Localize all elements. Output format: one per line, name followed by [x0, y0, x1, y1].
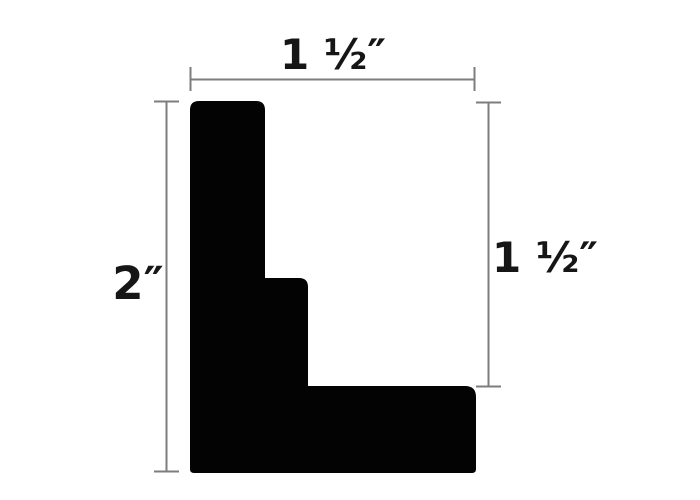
overall-height-label: 2″: [112, 257, 163, 310]
top-width-label: 1 ½″: [280, 30, 386, 79]
moulding-profile-shape: [190, 101, 476, 473]
diagram-canvas: 1 ½″ 2″ 1 ½″: [0, 0, 700, 500]
moulding-cross-section-diagram: 1 ½″ 2″ 1 ½″: [0, 0, 700, 500]
right-height-label: 1 ½″: [492, 233, 598, 282]
